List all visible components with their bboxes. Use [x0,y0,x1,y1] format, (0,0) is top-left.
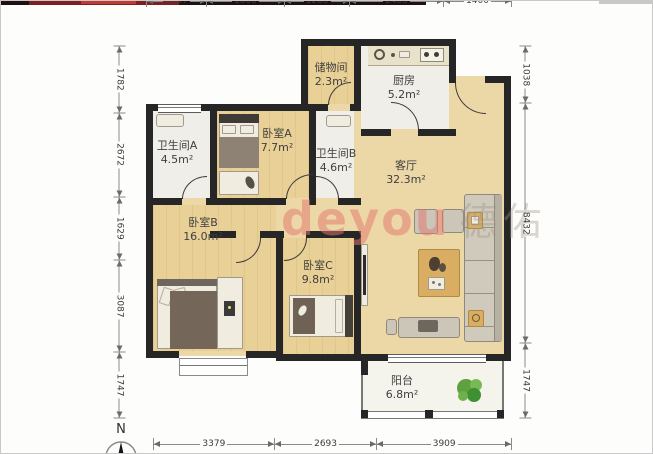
compass-rose-icon [102,438,140,454]
dim-line [285,1,304,2]
tray-dot-icon [438,283,441,286]
dim-value: 2405 [383,0,410,7]
wall [201,104,328,111]
wardrobe-dot-icon [228,306,231,309]
dimension-chain-left: 1782 2672 1629 3087 1747 [114,46,126,419]
dimension-segment: 2672 [114,112,126,196]
dim-value: 1280 [304,0,331,7]
wall-post [497,410,504,418]
wall [361,129,391,136]
kitchen-cutting-board [399,51,410,58]
dim-value: 1629 [114,215,126,242]
bay-window [179,358,248,376]
dim-line [339,444,376,445]
kitchen-sink-icon [374,49,385,60]
tray-dot-icon [432,281,435,284]
room-area: 32.3m² [361,173,451,187]
dimension-segment: 1800 [206,0,284,7]
room-label-bed-c: 卧室C9.8m² [273,259,363,288]
sofa-backrest [494,195,502,341]
room-name: 客厅 [361,159,451,173]
wall [312,198,316,205]
wall [350,104,361,111]
dim-value: 1800 [232,0,259,7]
wall [361,361,368,375]
room-area: 16.0m² [158,230,248,244]
wall [146,198,182,205]
dimension-segment: 3087 [114,260,126,352]
wall [338,198,361,205]
dimension-segment: 1280 [284,0,349,7]
dimension-segment: 1629 [114,196,126,260]
room-name: 厨房 [359,74,449,88]
dim-value: 3909 [431,438,458,450]
dimension-segment: 3379 [153,438,274,450]
dim-line [410,1,443,2]
wall [504,76,511,361]
compass: N [101,422,141,454]
outside-mask-top-left [146,39,301,104]
bench-cushion [418,320,438,332]
coffee-table-tray [428,277,445,290]
dim-line [147,1,163,2]
wall-post [425,410,433,418]
side-table-lamp-icon [472,314,480,322]
armchair [414,209,438,234]
room-area: 9.8m² [273,273,363,287]
dim-line [119,93,120,112]
dim-line [275,444,312,445]
outside-mask-top-right [456,39,511,76]
bed-a-headboard [219,114,259,123]
bed-c-blanket [293,298,315,334]
dimension-segment: 1087 [146,0,206,7]
bed-c-pillow [335,299,343,333]
room-name: 卧室B [158,216,248,230]
tv-icon [363,255,366,295]
plant-icon [454,375,488,407]
dim-value: 2672 [114,141,126,168]
bed-b-headboard [157,279,217,286]
dimension-segment: 1782 [114,46,126,113]
dim-value: 1782 [114,66,126,93]
stove-burner-icon [424,52,429,57]
dim-line [525,237,526,343]
room-name: 卫生间A [132,139,222,153]
dim-value: 1400 [464,0,491,7]
wall [276,354,388,361]
wall [276,238,283,358]
dimension-chain-top: 1087 1800 1280 2405 1400 [146,0,512,7]
dim-line [190,1,206,2]
floorplan-canvas: deyou德佑 储物间2.3m² 厨房5.2m² 卫生间A4.5m² 卧室A7.… [0,0,653,454]
room-area: 6.8m² [357,388,447,402]
dim-line [491,1,511,2]
dimension-segment: 2405 [349,0,443,7]
dim-line [458,444,511,445]
dim-line [119,113,120,141]
dim-line [525,104,526,210]
wall [301,39,456,46]
window [158,104,201,113]
dim-line [331,1,350,2]
kitchen-knob-icon [391,53,395,57]
dimension-chain-bottom: 3379 2693 3909 [153,438,512,450]
armchair [442,209,464,233]
dim-line [259,1,284,2]
coffee-table-decor-icon [439,263,446,272]
dim-line [525,47,526,62]
dim-value: 1747 [114,372,126,399]
dimension-segment: 1747 [114,352,126,418]
dimension-segment: 1747 [520,343,532,418]
room-area: 4.5m² [132,153,222,167]
room-area: 5.2m² [359,88,449,102]
dim-value: 3087 [114,293,126,320]
room-label-kitchen: 厨房5.2m² [359,74,449,103]
dim-line [119,353,120,372]
dim-value: 1087 [163,0,190,7]
dim-line [119,399,120,418]
stove-burner-icon [434,52,439,57]
room-name: 卧室A [232,127,322,141]
dim-line [525,344,526,368]
dim-line [207,1,232,2]
dim-value: 8432 [520,210,532,237]
wall [260,231,284,238]
bath-b-sink [326,115,351,127]
dim-line [119,168,120,196]
dim-value: 2693 [312,438,339,450]
dim-line [525,394,526,418]
dimension-chain-right: 1038 8432 1747 [520,46,532,419]
dim-line [350,1,383,2]
side-table-decor [471,216,479,225]
dimension-segment: 1038 [520,46,532,103]
dim-line [119,320,120,352]
dim-line [525,88,526,103]
floor-plan: deyou德佑 储物间2.3m² 厨房5.2m² 卫生间A4.5m² 卧室A7.… [146,39,511,423]
dim-line [119,242,120,260]
dim-line [119,261,120,293]
compass-north-label: N [101,422,141,437]
room-label-balcony: 阳台6.8m² [357,374,447,403]
dim-value: 1747 [520,367,532,394]
top-cropped-bar-red-bright [81,1,136,4]
top-cropped-text-fragment [599,1,653,4]
dimension-segment: 3909 [376,438,511,450]
dim-line [227,444,273,445]
wall [486,354,511,361]
balcony-slider-window [388,354,486,363]
wall [449,76,455,83]
dim-line [119,197,120,215]
wall [354,238,361,361]
dim-line [444,1,464,2]
wall-post [361,410,368,418]
bed-b-blanket [170,291,217,349]
dim-line [377,444,430,445]
room-label-bath-a: 卫生间A4.5m² [132,139,222,168]
bed-c-headboard [345,295,353,337]
dim-line [154,444,200,445]
bath-a-sink [156,114,184,127]
room-name: 阳台 [357,374,447,388]
wall [206,198,286,205]
dim-value: 3379 [200,438,227,450]
dimension-segment: 8432 [520,103,532,343]
dimension-segment: 1400 [443,0,511,7]
dim-line [119,47,120,66]
room-name: 卧室C [273,259,363,273]
wall [306,231,361,238]
balcony-right-rail [502,361,504,411]
dimension-segment: 2693 [274,438,377,450]
wall [418,129,456,136]
room-label-living: 客厅32.3m² [361,159,451,188]
room-label-bed-b: 卧室B16.0m² [158,216,248,245]
dim-value: 1038 [520,61,532,88]
wall [146,351,179,358]
stool [386,319,397,335]
